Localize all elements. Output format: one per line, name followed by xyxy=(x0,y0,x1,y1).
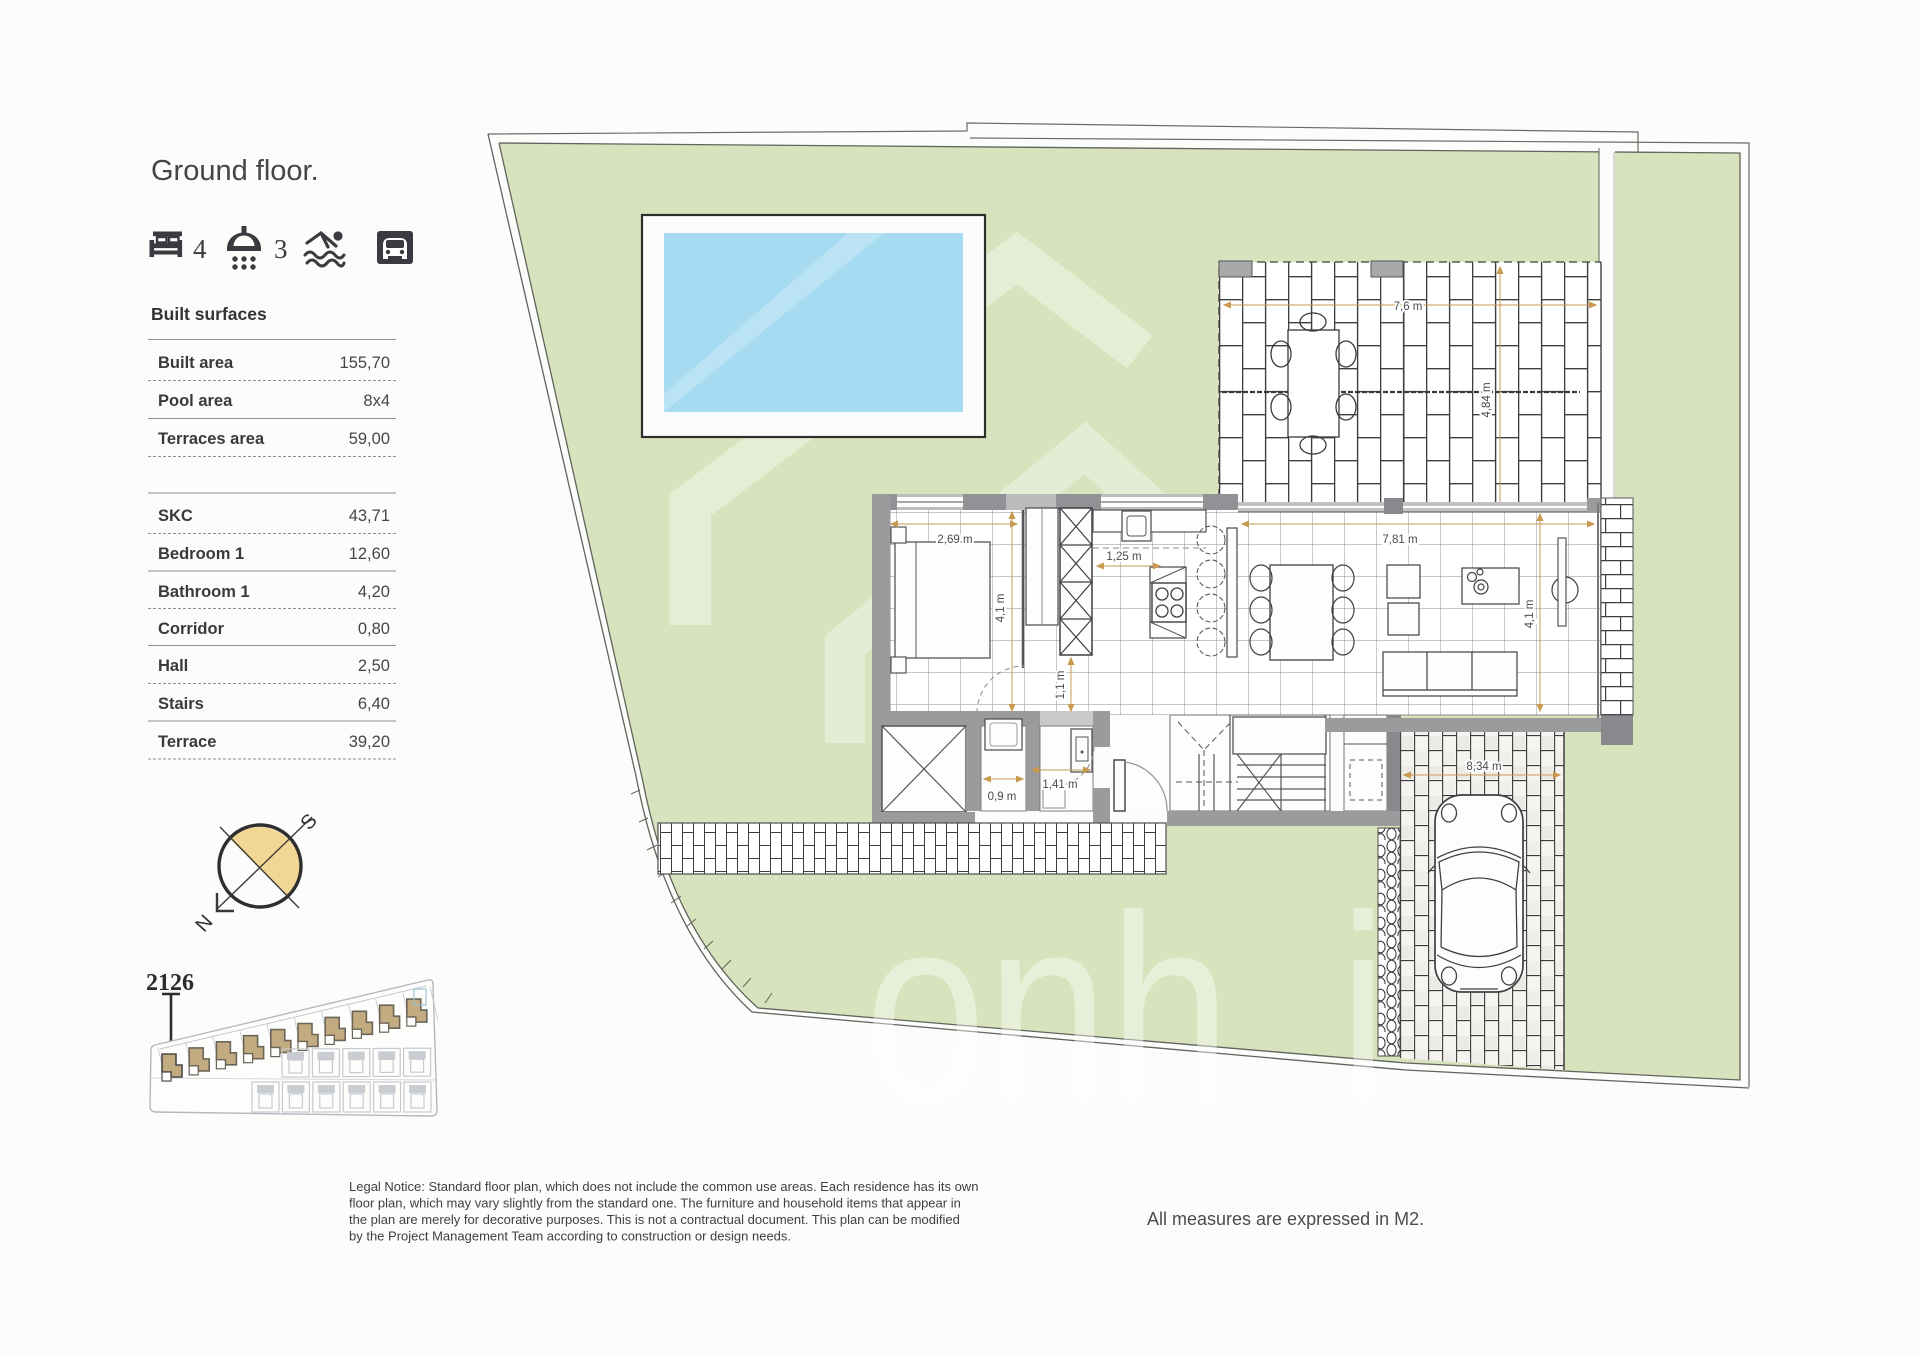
svg-text:0,80: 0,80 xyxy=(358,620,390,638)
svg-text:4,84 m: 4,84 m xyxy=(1481,382,1493,417)
svg-text:8x4: 8x4 xyxy=(363,392,390,410)
svg-text:S: S xyxy=(297,810,322,835)
svg-text:4: 4 xyxy=(193,234,207,264)
svg-text:the plan are merely for decora: the plan are merely for decorative purpo… xyxy=(349,1212,960,1227)
svg-text:2,69 m: 2,69 m xyxy=(937,534,972,546)
svg-text:by the Project Management Team: by the Project Management Team according… xyxy=(349,1229,791,1244)
svg-text:Corridor: Corridor xyxy=(158,620,225,638)
svg-text:6,40: 6,40 xyxy=(358,695,390,713)
svg-text:2,50: 2,50 xyxy=(358,657,390,675)
svg-text:Bedroom 1: Bedroom 1 xyxy=(158,545,244,563)
svg-text:59,00: 59,00 xyxy=(349,430,390,448)
svg-text:Legal Notice: Standard floor p: Legal Notice: Standard floor plan, which… xyxy=(349,1179,978,1194)
svg-text:12,60: 12,60 xyxy=(349,545,390,563)
svg-text:7,81 m: 7,81 m xyxy=(1382,534,1417,546)
svg-text:Terraces area: Terraces area xyxy=(158,430,265,448)
svg-text:floor plan, which may vary sli: floor plan, which may vary slightly from… xyxy=(349,1196,961,1211)
svg-text:N: N xyxy=(192,911,218,936)
svg-text:Pool area: Pool area xyxy=(158,392,233,410)
svg-text:Hall: Hall xyxy=(158,657,188,675)
svg-text:Ground floor.: Ground floor. xyxy=(151,155,319,187)
svg-text:4,20: 4,20 xyxy=(358,583,390,601)
svg-text:Terrace: Terrace xyxy=(158,733,216,751)
svg-text:All measures are expressed in: All measures are expressed in M2. xyxy=(1147,1209,1424,1229)
svg-text:Bathroom 1: Bathroom 1 xyxy=(158,583,250,601)
svg-text:2126: 2126 xyxy=(146,970,194,996)
svg-text:1,1 m: 1,1 m xyxy=(1055,671,1067,700)
svg-text:4,1 m: 4,1 m xyxy=(1524,600,1536,629)
svg-text:Stairs: Stairs xyxy=(158,695,204,713)
svg-text:8,34 m: 8,34 m xyxy=(1466,761,1501,773)
svg-text:3: 3 xyxy=(274,234,288,264)
svg-text:0,9 m: 0,9 m xyxy=(988,791,1017,803)
svg-text:155,70: 155,70 xyxy=(340,354,390,372)
svg-text:1,25 m: 1,25 m xyxy=(1106,551,1141,563)
svg-text:4,1 m: 4,1 m xyxy=(995,594,1007,623)
svg-text:43,71: 43,71 xyxy=(349,507,390,525)
svg-text:SKC: SKC xyxy=(158,507,193,525)
svg-text:39,20: 39,20 xyxy=(349,733,390,751)
svg-text:Built area: Built area xyxy=(158,354,234,372)
svg-text:1,41 m: 1,41 m xyxy=(1042,779,1077,791)
svg-text:Built surfaces: Built surfaces xyxy=(151,304,267,324)
svg-text:7,6 m: 7,6 m xyxy=(1394,301,1423,313)
